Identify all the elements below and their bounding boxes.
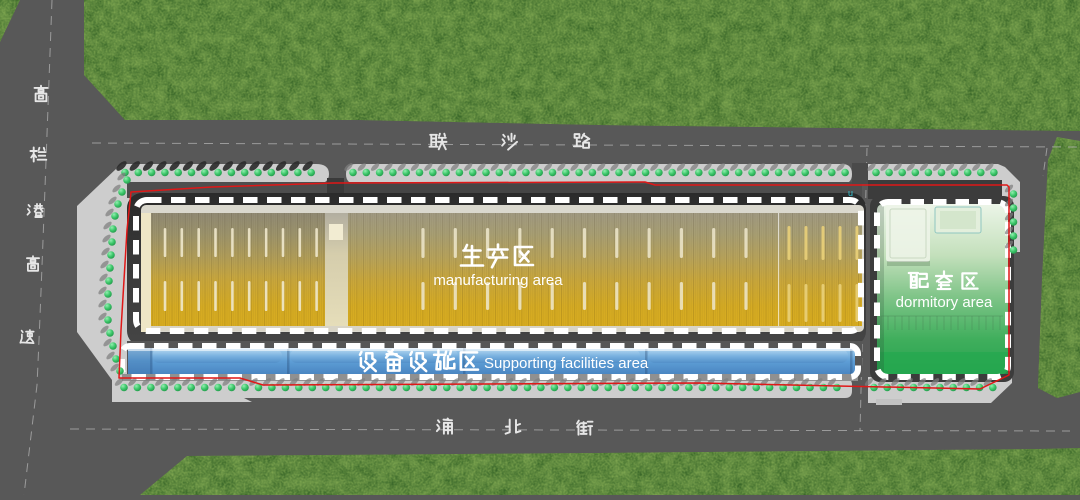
svg-text:dormitory area: dormitory area: [896, 294, 993, 311]
svg-text:u: u: [848, 188, 853, 198]
svg-text:manufacturing area: manufacturing area: [433, 272, 563, 289]
svg-text:Supporting facilities area: Supporting facilities area: [484, 355, 649, 372]
